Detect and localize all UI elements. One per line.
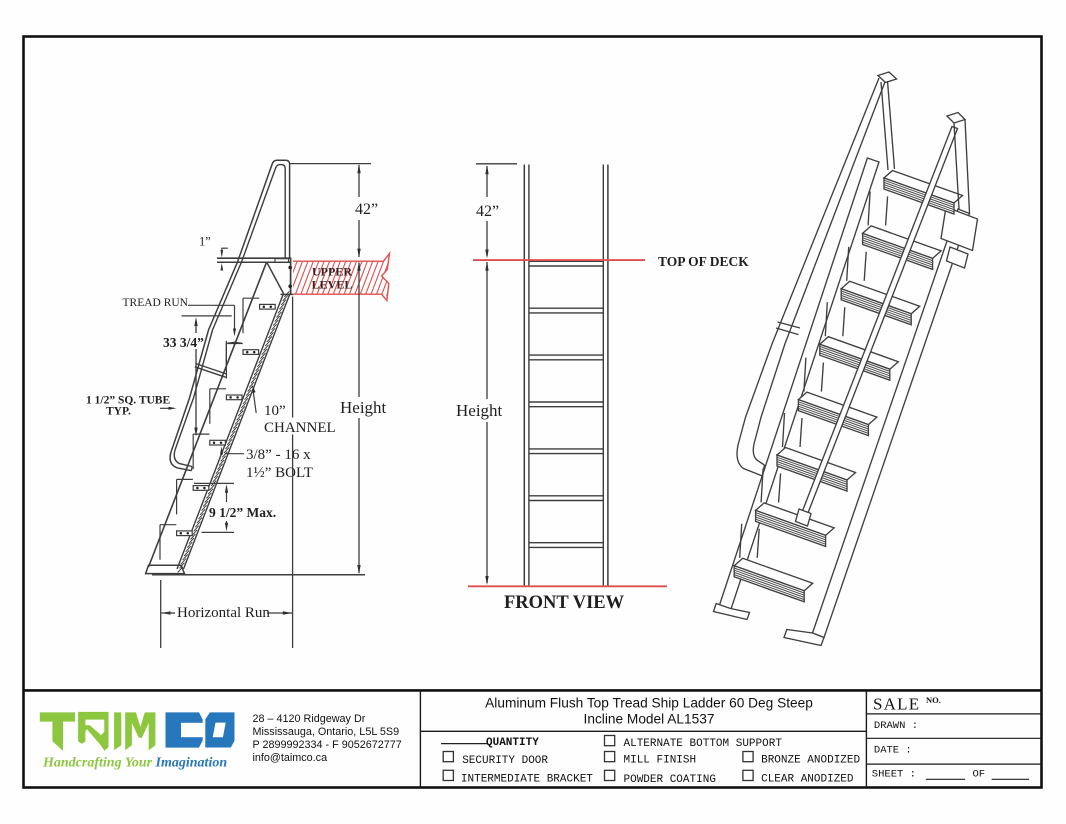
svg-text:DATE :: DATE :	[874, 744, 912, 756]
svg-text:3/8” - 16 x: 3/8” - 16 x	[246, 447, 311, 463]
svg-text:10”: 10”	[264, 403, 286, 419]
svg-text:Height: Height	[456, 401, 503, 420]
svg-text:Horizontal Run: Horizontal Run	[177, 605, 270, 621]
svg-text:28 – 4120 Ridgeway Dr: 28 – 4120 Ridgeway Dr	[253, 713, 366, 725]
svg-text:CHANNEL: CHANNEL	[264, 420, 336, 436]
svg-text:1½” BOLT: 1½” BOLT	[246, 465, 313, 481]
svg-text:MILL FINISH: MILL FINISH	[624, 755, 697, 767]
svg-text:1”: 1”	[199, 235, 211, 249]
svg-text:Incline Model AL1537: Incline Model AL1537	[584, 712, 715, 727]
svg-text:LEVEL: LEVEL	[312, 278, 353, 292]
svg-text:TYP.: TYP.	[106, 406, 131, 418]
svg-text:INTERMEDIATE BRACKET: INTERMEDIATE BRACKET	[461, 773, 593, 785]
svg-text:POWDER COATING: POWDER COATING	[624, 774, 716, 786]
svg-text:NO.: NO.	[926, 695, 941, 705]
svg-text:info@taimco.ca: info@taimco.ca	[253, 752, 328, 764]
svg-text:SHEET :: SHEET :	[872, 769, 916, 781]
svg-text:FRONT VIEW: FRONT VIEW	[504, 593, 625, 613]
svg-text:Handcrafting Your Imagination: Handcrafting Your Imagination	[42, 756, 227, 771]
svg-text:UPPER: UPPER	[312, 265, 352, 279]
svg-text:CLEAR ANODIZED: CLEAR ANODIZED	[761, 773, 854, 785]
svg-text:P 2899992334 - F 9052672777: P 2899992334 - F 9052672777	[253, 739, 402, 751]
svg-text:42”: 42”	[355, 201, 378, 218]
svg-text:TOP OF DECK: TOP OF DECK	[658, 254, 749, 269]
svg-text:Aluminum Flush Top Tread Ship: Aluminum Flush Top Tread Ship Ladder 60 …	[485, 696, 813, 711]
svg-text:SECURITY DOOR: SECURITY DOOR	[462, 755, 548, 767]
svg-text:QUANTITY: QUANTITY	[486, 737, 539, 749]
svg-text:Height: Height	[340, 398, 387, 417]
svg-text:33 3/4”: 33 3/4”	[163, 335, 204, 350]
svg-text:BRONZE ANODIZED: BRONZE ANODIZED	[761, 755, 860, 767]
svg-text:DRAWN :: DRAWN :	[874, 720, 918, 732]
svg-text:TREAD RUN: TREAD RUN	[123, 297, 189, 309]
svg-text:9 1/2” Max.: 9 1/2” Max.	[209, 505, 276, 520]
svg-text:OF: OF	[973, 769, 986, 781]
svg-text:ALTERNATE BOTTOM SUPPORT: ALTERNATE BOTTOM SUPPORT	[624, 738, 783, 750]
svg-text:Mississauga, Ontario, L5L 5S9: Mississauga, Ontario, L5L 5S9	[253, 726, 400, 738]
svg-text:42”: 42”	[476, 203, 499, 220]
svg-text:SALE: SALE	[873, 695, 920, 714]
